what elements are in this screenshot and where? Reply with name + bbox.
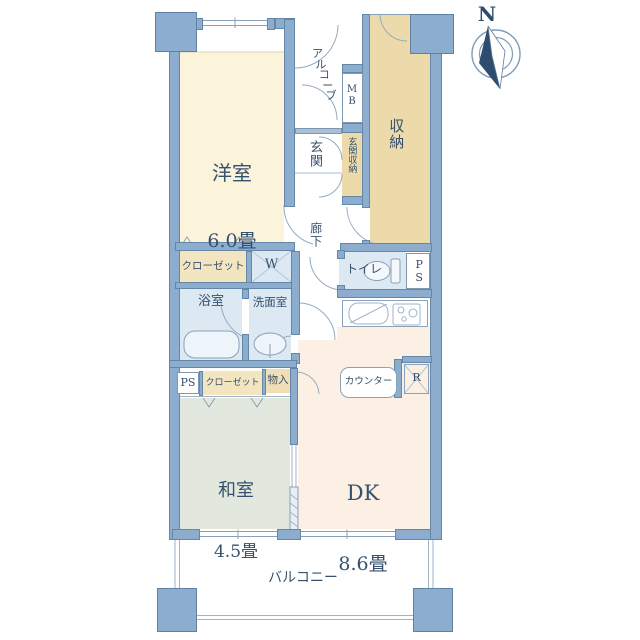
balcony-label: バルコニー: [233, 570, 373, 586]
japanese-room-size: 4.5畳: [180, 543, 292, 563]
wall-segment: [291, 251, 300, 335]
western-room-name: 洋室: [180, 162, 284, 185]
entrance-label: 玄関: [306, 140, 321, 168]
storage-label: 収納: [387, 118, 404, 150]
floor-plan: 洋室 6.0畳 和室 4.5畳 DK 8.6畳 収納 玄関 玄関収納 MB 廊下…: [0, 0, 640, 640]
sink-icon: [254, 333, 286, 358]
wall-segment: [337, 289, 432, 298]
wall-segment: [342, 123, 363, 133]
closet-upper-label: クローゼット: [180, 260, 246, 272]
bathroom-label: 浴室: [180, 295, 242, 310]
pipe-space-right-label: PS: [412, 258, 425, 284]
wall-segment: [342, 196, 363, 205]
washer-label: W: [252, 258, 291, 273]
bathtub-icon: [184, 331, 239, 358]
wall-segment: [340, 243, 432, 252]
kitchen-counter-strip: [342, 300, 428, 327]
wall-segment: [169, 360, 297, 368]
dk-name: DK: [300, 481, 426, 505]
wall-segment: [337, 250, 345, 259]
pillar: [410, 14, 454, 54]
entrance-storage-label: 玄関収納: [346, 137, 356, 173]
wall-segment: [362, 14, 370, 208]
washroom-label: 洗面室: [245, 296, 295, 309]
wall-segment: [284, 19, 295, 207]
wall-segment: [290, 368, 298, 445]
closet-lower-label: クローゼット: [203, 378, 262, 388]
wall-segment: [267, 18, 275, 30]
pillar: [155, 12, 197, 52]
alcove-label: アルコーブ: [312, 48, 352, 118]
entrance-door-sill: [295, 128, 342, 134]
japanese-room-name: 和室: [180, 481, 292, 502]
counter-label: カウンター: [340, 377, 397, 388]
compass-north-label: N: [476, 3, 498, 26]
wall-segment: [242, 334, 249, 362]
pipe-space-left-label: PS: [177, 377, 199, 390]
refrigerator-label: R: [404, 372, 429, 385]
compass-icon: [472, 26, 520, 89]
storage-small-label: 物入: [265, 374, 291, 386]
wall-segment: [402, 356, 432, 363]
window-western: [195, 18, 275, 29]
dk-label: DK 8.6畳: [300, 433, 426, 624]
wall-segment: [169, 50, 180, 540]
hallway-label: 廊下: [308, 222, 322, 248]
western-room-size: 6.0畳: [180, 231, 284, 253]
toilet-label: トイレ: [340, 263, 388, 277]
